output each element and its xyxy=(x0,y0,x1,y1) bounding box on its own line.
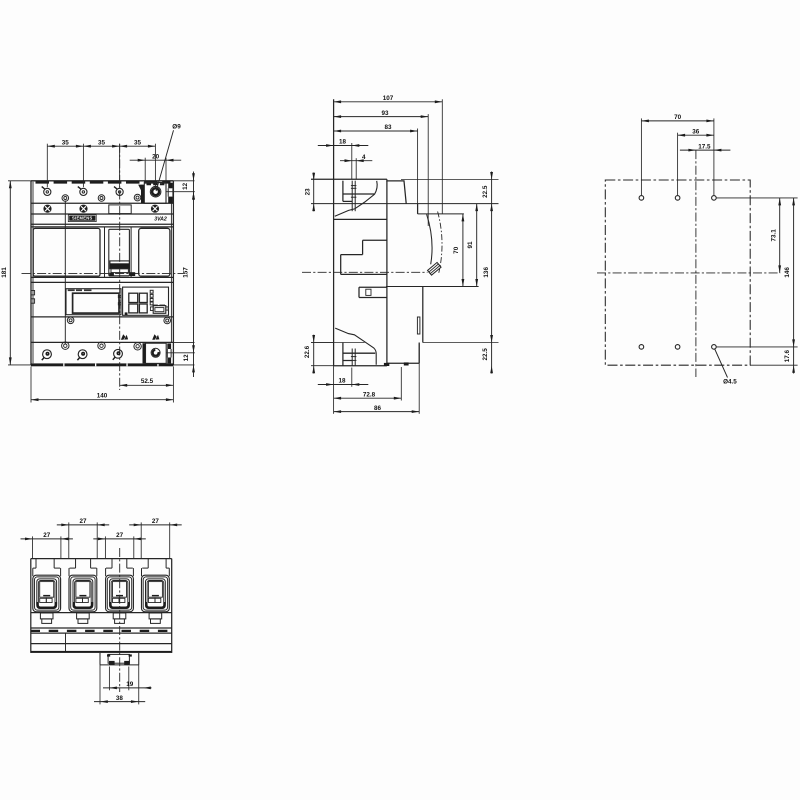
svg-text:18: 18 xyxy=(338,378,346,385)
svg-text:27: 27 xyxy=(152,518,160,525)
svg-text:72.8: 72.8 xyxy=(363,391,376,398)
svg-text:4: 4 xyxy=(362,154,366,161)
svg-text:91: 91 xyxy=(467,241,474,249)
svg-text:35: 35 xyxy=(98,139,106,146)
svg-text:Ø9: Ø9 xyxy=(172,124,181,131)
svg-text:86: 86 xyxy=(374,405,382,412)
svg-text:107: 107 xyxy=(383,95,394,102)
svg-text:140: 140 xyxy=(97,393,108,400)
svg-text:157: 157 xyxy=(183,267,190,278)
svg-text:20: 20 xyxy=(152,153,160,160)
svg-text:SIEMENS: SIEMENS xyxy=(72,216,93,221)
svg-text:17.6: 17.6 xyxy=(784,349,791,362)
svg-text:19: 19 xyxy=(126,681,134,688)
svg-text:181: 181 xyxy=(1,267,8,278)
svg-text:83: 83 xyxy=(384,124,392,131)
svg-text:73.1: 73.1 xyxy=(770,229,777,242)
svg-text:22.6: 22.6 xyxy=(304,345,311,358)
svg-text:35: 35 xyxy=(62,139,70,146)
svg-text:23: 23 xyxy=(304,188,311,196)
svg-text:Ø4.5: Ø4.5 xyxy=(723,379,737,386)
svg-text:52.5: 52.5 xyxy=(141,378,154,385)
svg-text:70: 70 xyxy=(453,246,460,254)
svg-text:27: 27 xyxy=(116,532,124,539)
svg-text:18: 18 xyxy=(339,139,347,146)
svg-text:146: 146 xyxy=(784,267,791,278)
svg-text:27: 27 xyxy=(79,518,87,525)
svg-text:17.5: 17.5 xyxy=(698,143,711,150)
svg-text:35: 35 xyxy=(134,139,142,146)
svg-text:12: 12 xyxy=(183,354,190,362)
svg-text:70: 70 xyxy=(674,114,682,121)
svg-text:38: 38 xyxy=(116,695,124,702)
svg-text:27: 27 xyxy=(43,532,51,539)
svg-text:136: 136 xyxy=(483,267,490,278)
svg-text:93: 93 xyxy=(381,110,389,117)
svg-text:12: 12 xyxy=(182,182,189,190)
svg-text:22.5: 22.5 xyxy=(482,348,489,361)
svg-text:3VA2: 3VA2 xyxy=(154,216,167,222)
svg-text:22.5: 22.5 xyxy=(482,185,489,198)
svg-text:36: 36 xyxy=(692,128,700,135)
